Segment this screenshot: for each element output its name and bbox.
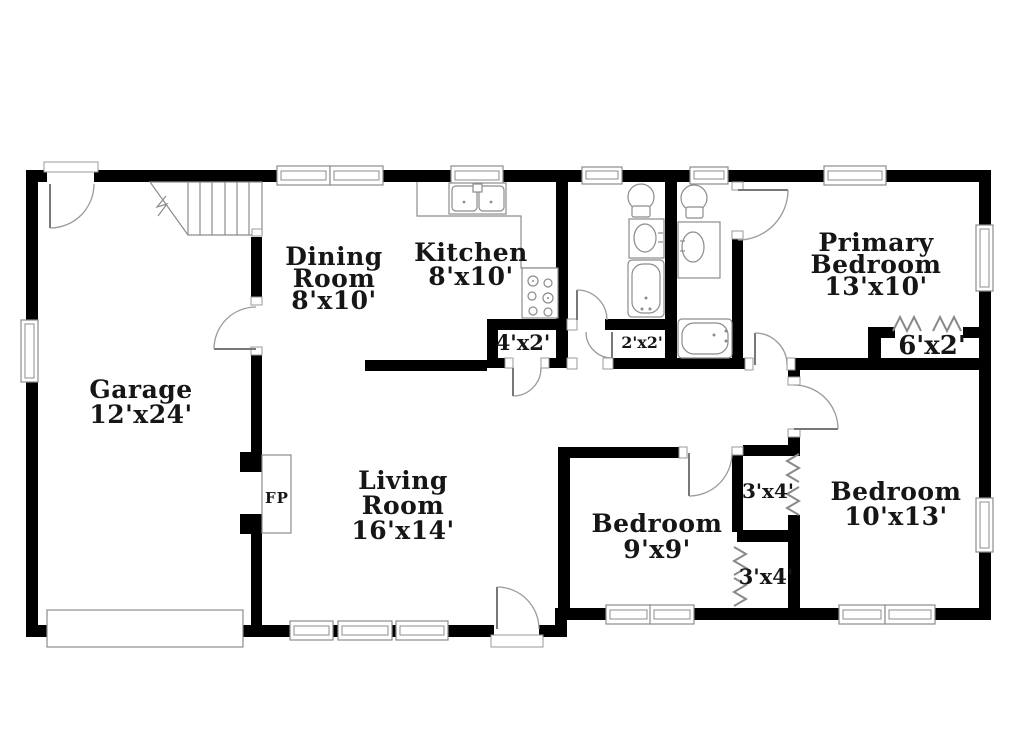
- vanity-sink: [678, 222, 720, 278]
- garage-entry-door: [44, 162, 98, 228]
- dining-door: [214, 297, 262, 355]
- dining-room-dims: 8'x10': [291, 286, 376, 315]
- hall-bath-window: [582, 167, 622, 184]
- fireplace: FP: [262, 455, 291, 533]
- kitchen-window: [451, 166, 503, 185]
- bedroom-9x9-label: Bedroom: [592, 509, 723, 538]
- bedroom-10x13-window: [885, 605, 935, 624]
- bathtub: [678, 319, 732, 358]
- primary-bath-window: [690, 167, 728, 184]
- hallway-opening-jamb: [567, 358, 577, 369]
- primary-bedroom-side-window: [976, 225, 993, 291]
- staircase: [150, 182, 262, 236]
- living-room-window: [290, 621, 333, 640]
- kitchen-dims: 8'x10': [428, 262, 513, 291]
- bedroom-10x13-dims: 10'x13': [844, 502, 947, 531]
- garage-door: [47, 610, 243, 647]
- garage-window: [21, 320, 38, 382]
- vanity-sink: [629, 219, 664, 258]
- garage-dims: 12'x24': [89, 400, 192, 429]
- bedroom-9x9-window: [650, 605, 694, 624]
- primary-bedroom-door: [745, 333, 795, 370]
- primary-bath-door: [732, 182, 788, 240]
- bedroom-10x13-side-window: [976, 498, 993, 552]
- hall-closet-door: [505, 358, 549, 396]
- upper-closet-bifold: [787, 454, 799, 482]
- living-room-window: [396, 621, 448, 640]
- primary-bath-fixtures: [678, 185, 732, 358]
- bathtub: [628, 260, 664, 317]
- living-room-window: [338, 621, 392, 640]
- hall-bath-fixtures: [628, 184, 664, 317]
- primary-closet-dims: 6'x2': [898, 331, 966, 361]
- toilet: [681, 185, 707, 218]
- hallway-opening-jamb: [603, 358, 613, 369]
- bedroom-9x9-window: [606, 605, 651, 624]
- primary-bedroom-window: [824, 166, 886, 185]
- lower-closet-dims: 3'x4': [739, 564, 794, 589]
- upper-closet-dims: 3'x4': [742, 479, 794, 503]
- floor-plan-canvas: FP: [0, 0, 1024, 744]
- linen-closet-dims: 2'x2': [621, 333, 663, 352]
- bedroom-9x9-dims: 9'x9': [623, 535, 691, 564]
- floor-plan-page: FP: [0, 0, 1024, 744]
- front-door: [491, 587, 543, 647]
- toilet: [628, 184, 654, 217]
- kitchen-sink: [449, 183, 506, 214]
- linen-closet-door: [586, 332, 612, 358]
- primary-closet-bifold: [893, 317, 921, 331]
- fireplace-label: FP: [265, 489, 289, 507]
- hall-bath-door: [567, 290, 607, 330]
- living-room-dims: 16'x14': [351, 516, 454, 545]
- bedroom-10x13-window: [839, 605, 885, 624]
- hall-closet-dims: 4'x2': [496, 330, 551, 355]
- dining-window: [277, 166, 330, 185]
- bedroom-10x13-door: [788, 377, 838, 437]
- primary-closet-bifold: [933, 317, 961, 331]
- stove: [522, 268, 558, 318]
- primary-bedroom-dims: 13'x10': [824, 272, 927, 301]
- dining-window: [330, 166, 383, 185]
